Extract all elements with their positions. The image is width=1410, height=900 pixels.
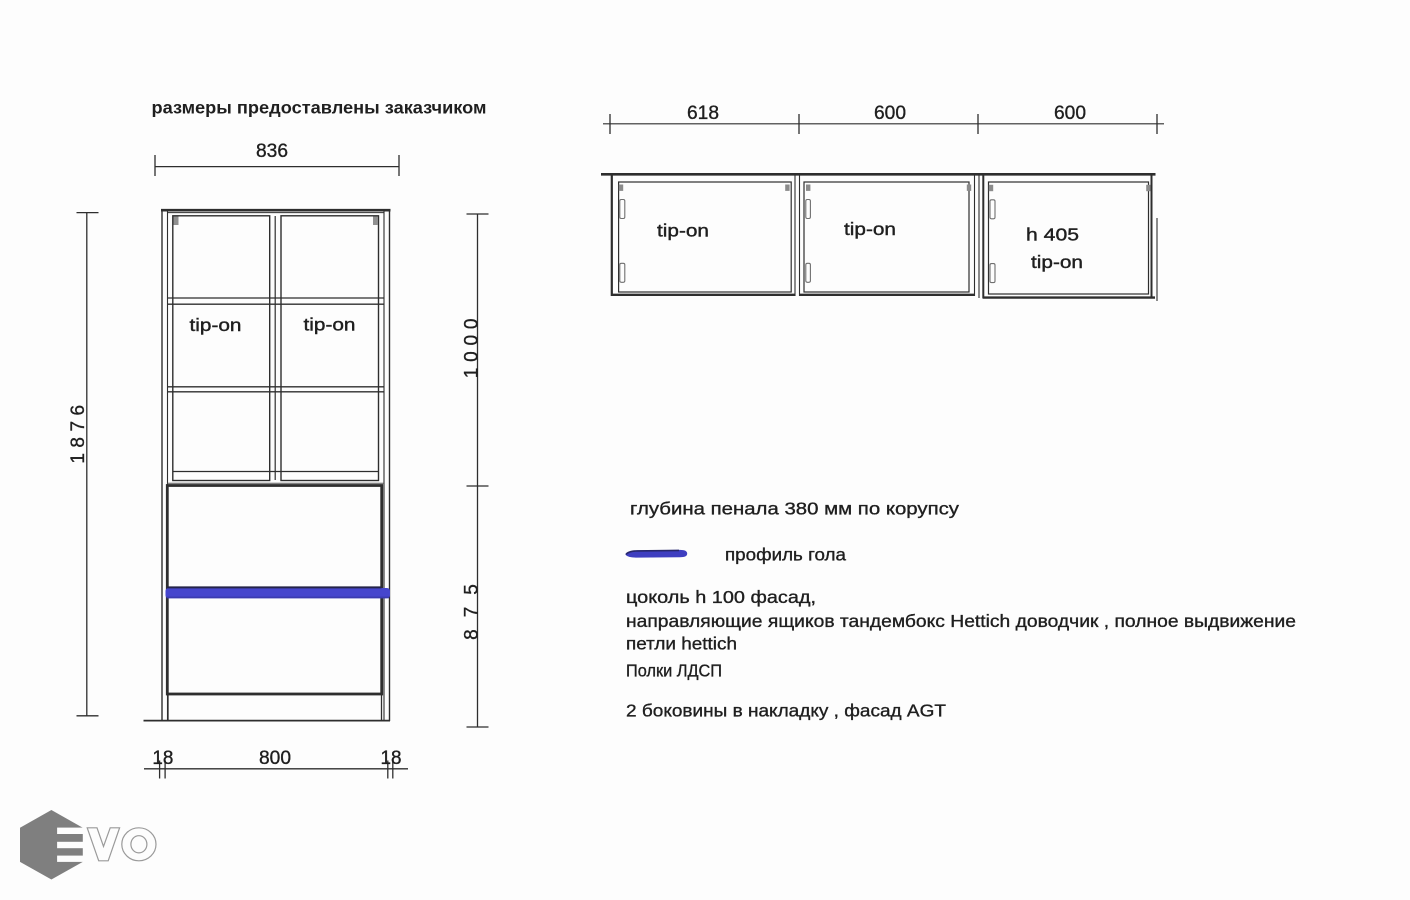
svg-text:1876: 1876 (68, 399, 89, 463)
svg-text:tip-on: tip-on (304, 315, 356, 335)
svg-text:600: 600 (874, 103, 906, 124)
svg-text:tip-on: tip-on (844, 219, 896, 239)
svg-text:tip-on: tip-on (190, 315, 242, 335)
svg-text:618: 618 (687, 103, 719, 124)
svg-text:800: 800 (259, 748, 291, 769)
svg-text:Полки ЛДСП: Полки ЛДСП (626, 661, 722, 681)
svg-text:цоколь h 100 фасад,: цоколь h 100 фасад, (626, 587, 816, 607)
svg-text:18: 18 (152, 748, 173, 769)
svg-text:размеры предоставлены заказчик: размеры предоставлены заказчиком (152, 98, 487, 118)
svg-text:18: 18 (381, 748, 402, 769)
svg-text:h 405: h 405 (1026, 225, 1079, 245)
svg-text:петли hettich: петли hettich (626, 634, 737, 654)
svg-text:875: 875 (462, 572, 483, 640)
svg-text:tip-on: tip-on (657, 221, 709, 241)
svg-text:2 боковины в накладку , фасад: 2 боковины в накладку , фасад AGT (626, 701, 946, 721)
svg-text:профиль гола: профиль гола (725, 545, 846, 565)
svg-text:600: 600 (1054, 103, 1086, 124)
svg-text:tip-on: tip-on (1031, 252, 1083, 272)
svg-text:глубина пенала 380 мм по ко: глубина пенала 380 мм по корупсу (630, 499, 959, 519)
svg-text:направляющие ящиков тандембокс: направляющие ящиков тандембокс Hettich д… (626, 611, 1296, 631)
svg-text:836: 836 (256, 141, 288, 162)
svg-text:1000: 1000 (462, 313, 483, 378)
